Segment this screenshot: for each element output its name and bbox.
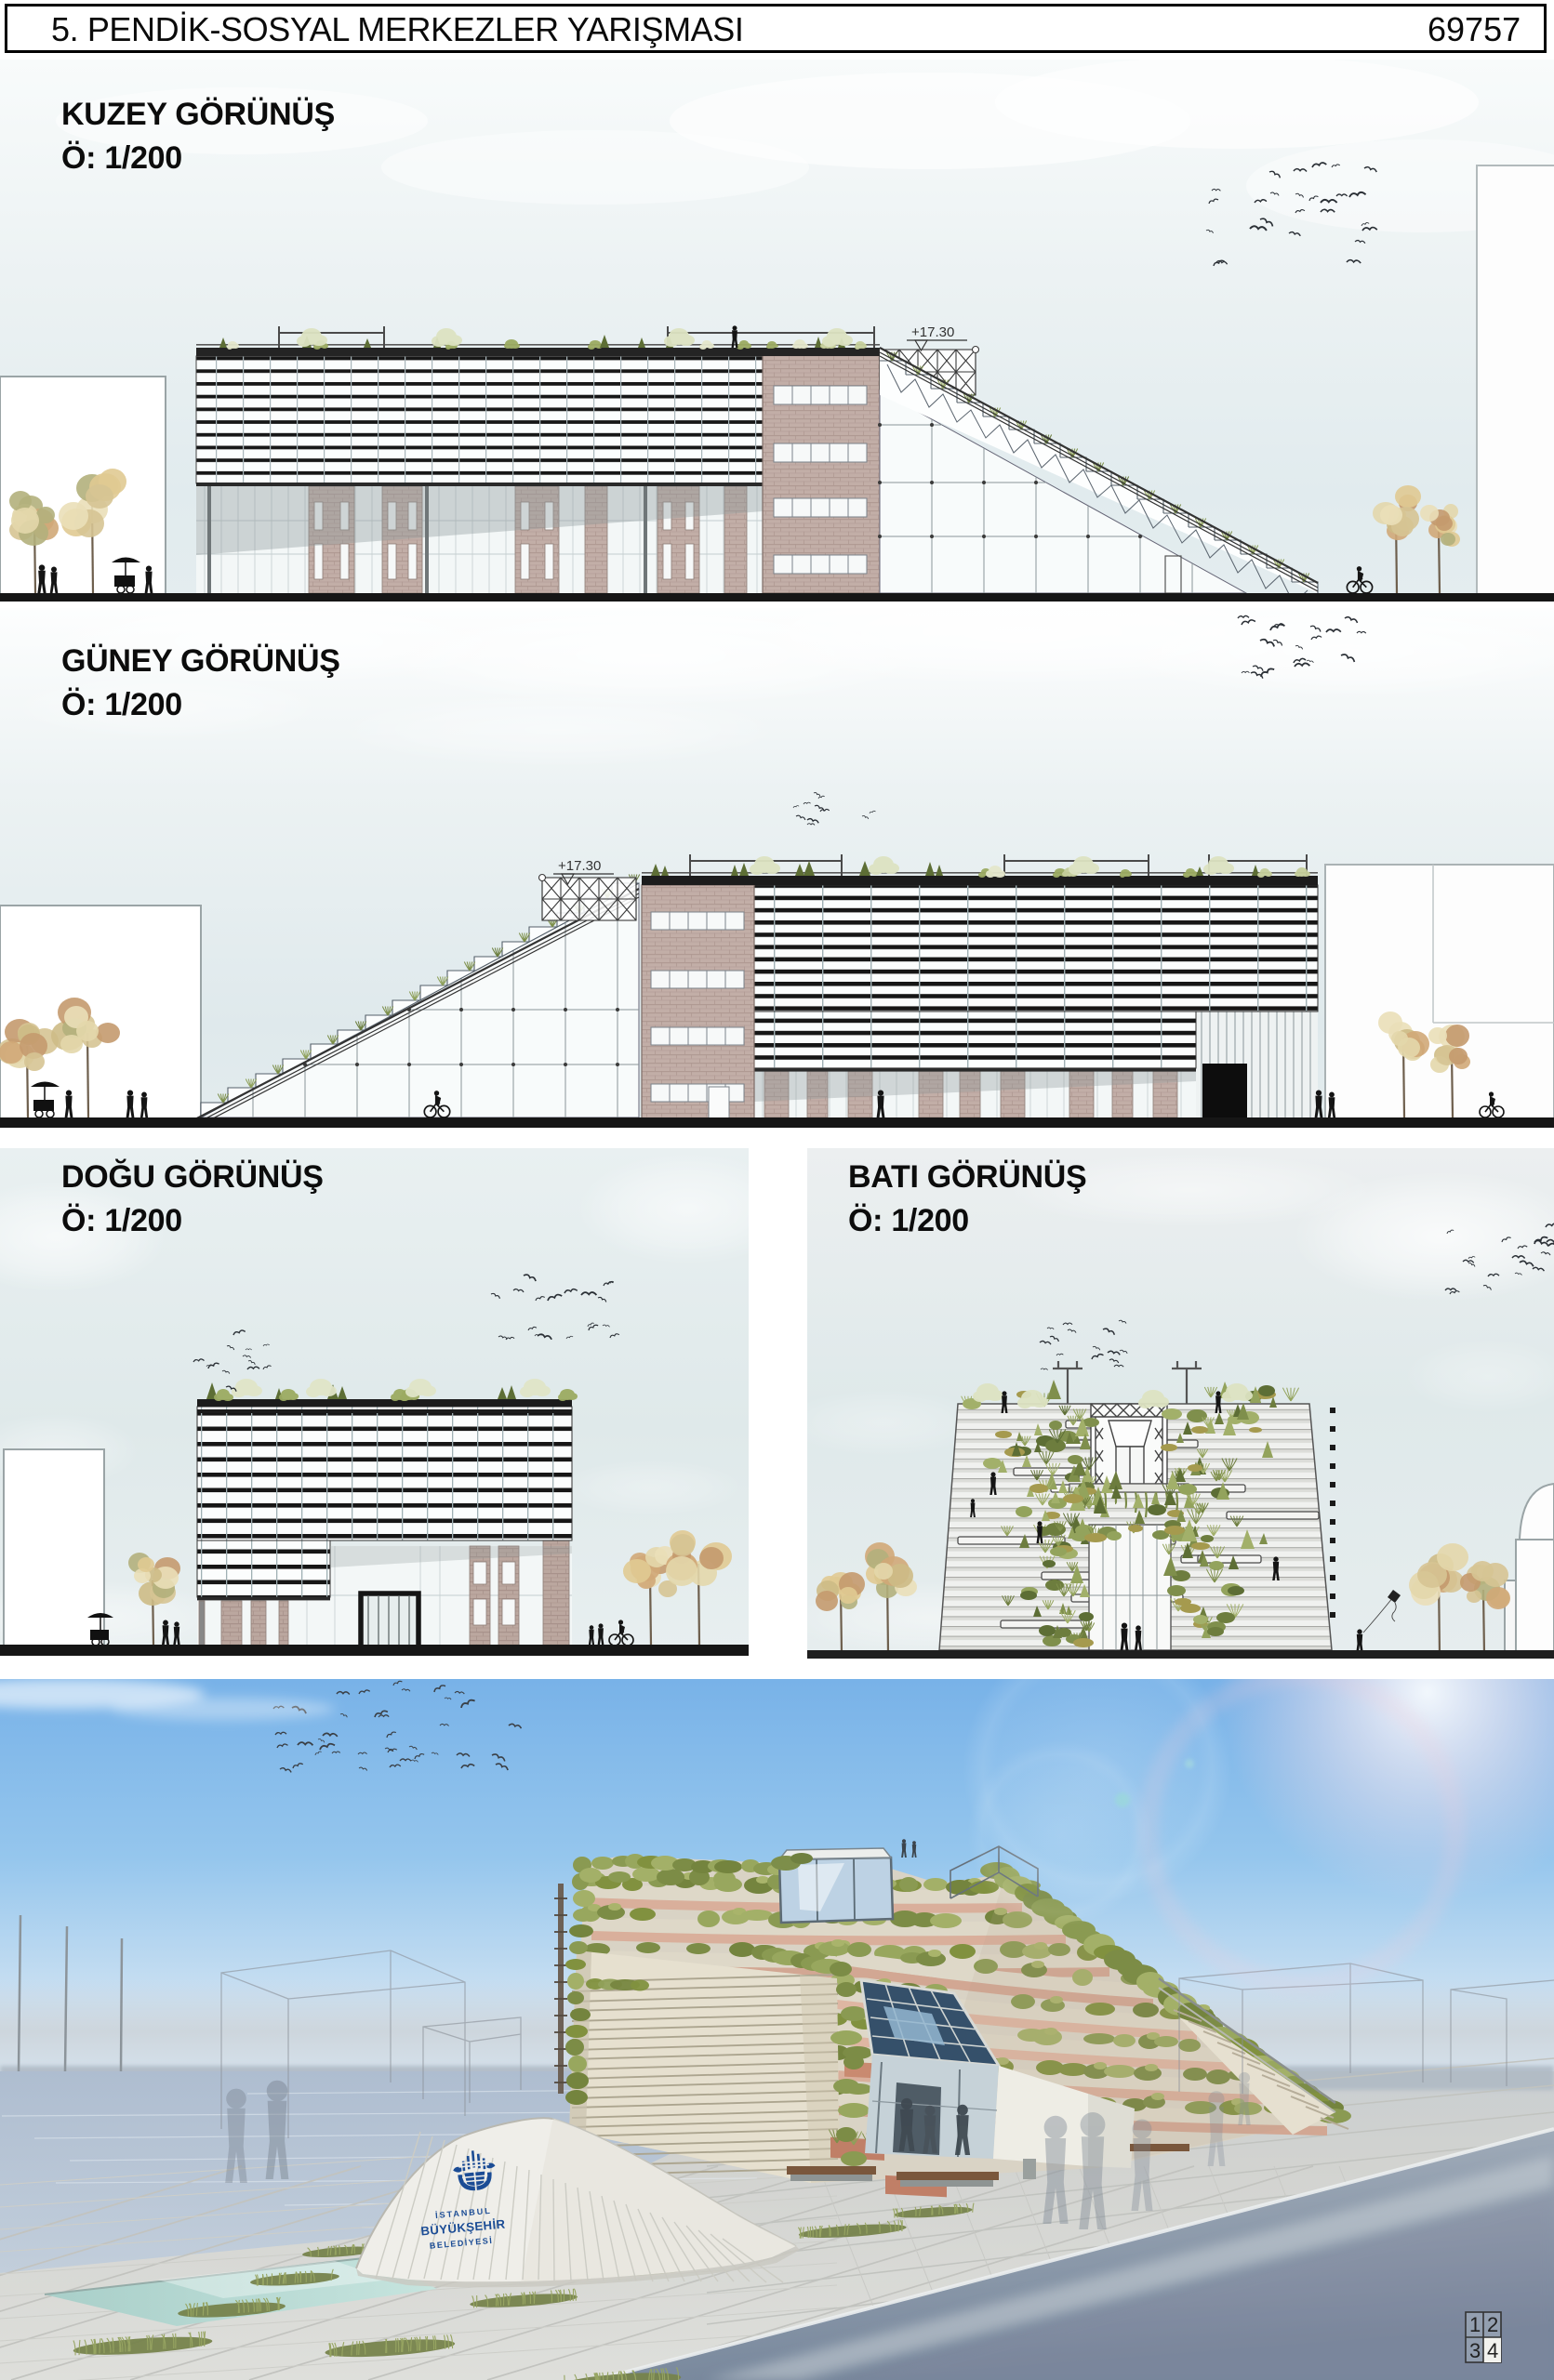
- svg-text:+17.30: +17.30: [911, 324, 954, 340]
- svg-text:1: 1: [1469, 2313, 1481, 2336]
- svg-text:+17.30: +17.30: [558, 858, 601, 874]
- svg-text:3: 3: [1469, 2339, 1481, 2362]
- svg-text:2: 2: [1487, 2313, 1498, 2336]
- svg-text:4: 4: [1487, 2339, 1498, 2362]
